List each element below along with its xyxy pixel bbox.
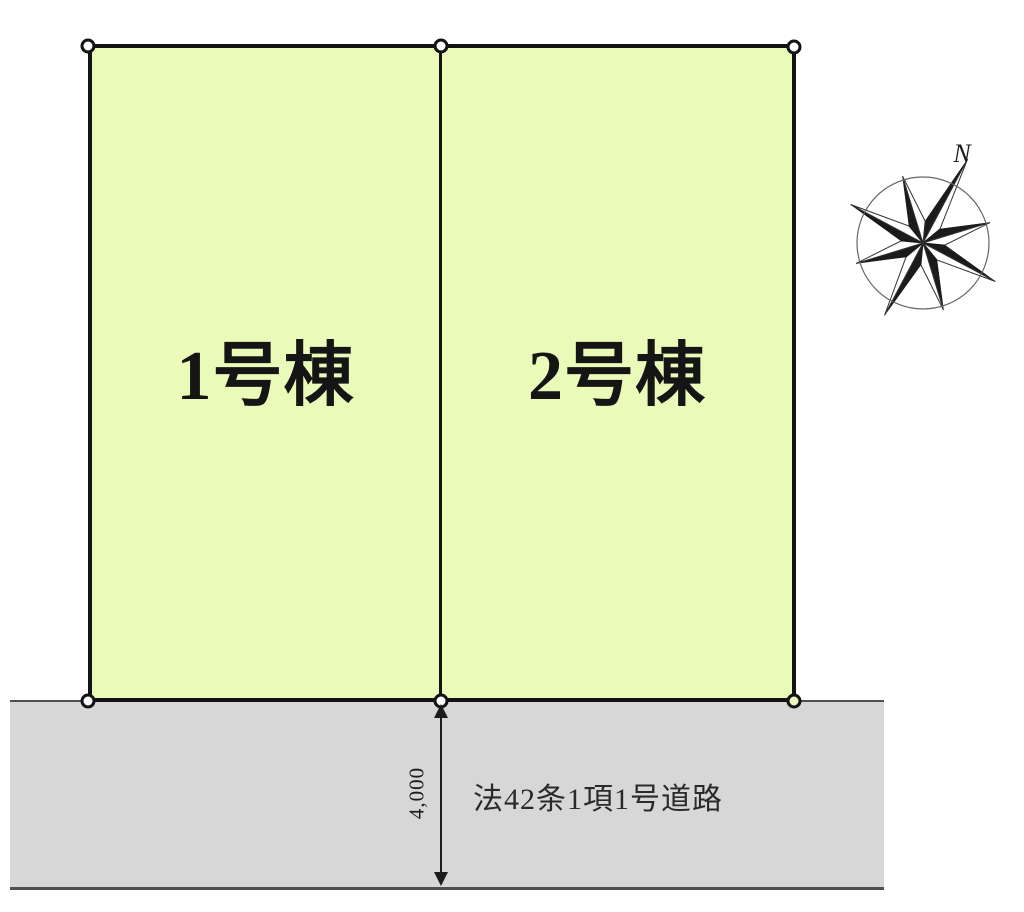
compass-north-label: N: [952, 139, 972, 168]
dimension-arrow-down-icon: [434, 872, 448, 886]
dimension-label: 4,000: [405, 767, 430, 819]
survey-point-marker-top-middle: [434, 39, 449, 54]
site-plan-canvas: 法42条1項1号道路 1号棟 2号棟 4,000: [0, 0, 1024, 912]
parcel-2-label: 2号棟: [528, 319, 706, 420]
survey-point-marker-top-right: [787, 40, 802, 55]
survey-point-marker-bottom-left: [81, 694, 96, 709]
parcel-1-label: 1号棟: [177, 319, 355, 420]
road-area: 法42条1項1号道路: [10, 700, 884, 890]
parcel-1: 1号棟: [92, 48, 439, 698]
parcel-2: 2号棟: [442, 48, 792, 698]
plot-outline: 1号棟 2号棟: [88, 44, 796, 702]
dimension-line: [440, 712, 442, 884]
survey-point-marker-bottom-right: [787, 694, 802, 709]
compass-rose-icon: N: [823, 133, 1023, 343]
dimension-arrow-up-icon: [434, 704, 448, 718]
survey-point-marker-top-left: [81, 39, 96, 54]
road-label: 法42条1項1号道路: [473, 774, 723, 818]
